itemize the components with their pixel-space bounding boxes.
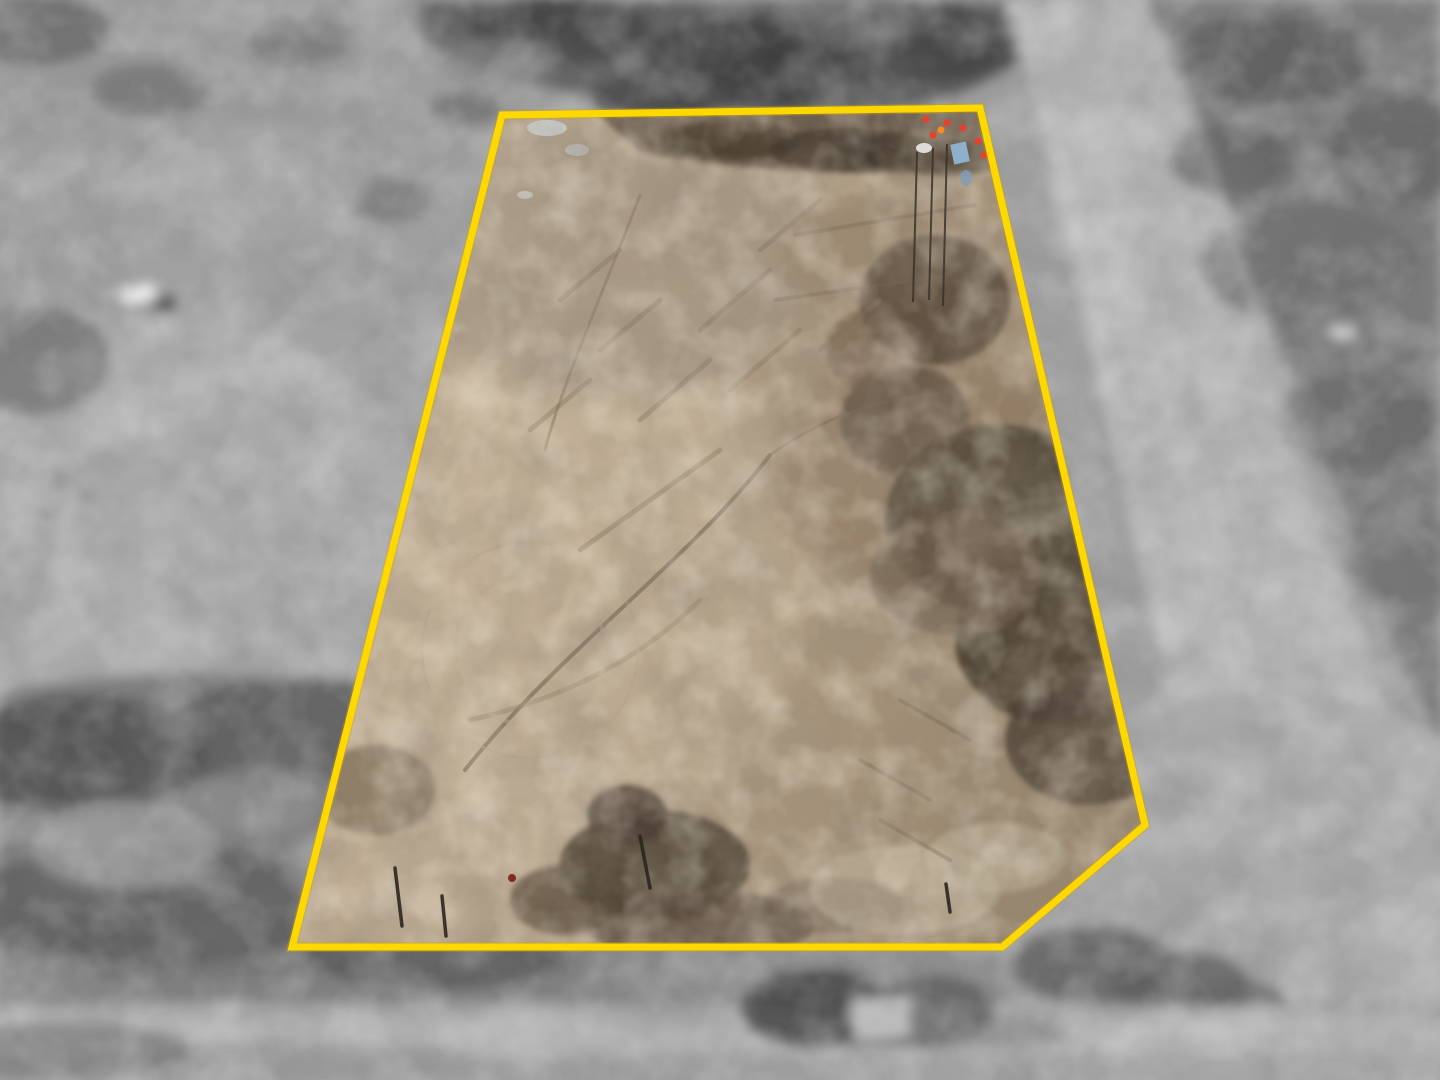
survey-flag-icon (938, 127, 945, 134)
survey-flag-icon (923, 116, 930, 123)
survey-flag-icon (960, 125, 967, 132)
red-marker (508, 874, 516, 882)
survey-flag-icon (944, 120, 951, 127)
survey-flag-icon (975, 138, 982, 145)
aerial-photo-stage (0, 0, 1440, 1080)
survey-flag-icon (930, 132, 937, 139)
blue-barrel (960, 170, 972, 186)
aerial-site-photo (0, 0, 1440, 1080)
white-sandbag (916, 143, 932, 153)
